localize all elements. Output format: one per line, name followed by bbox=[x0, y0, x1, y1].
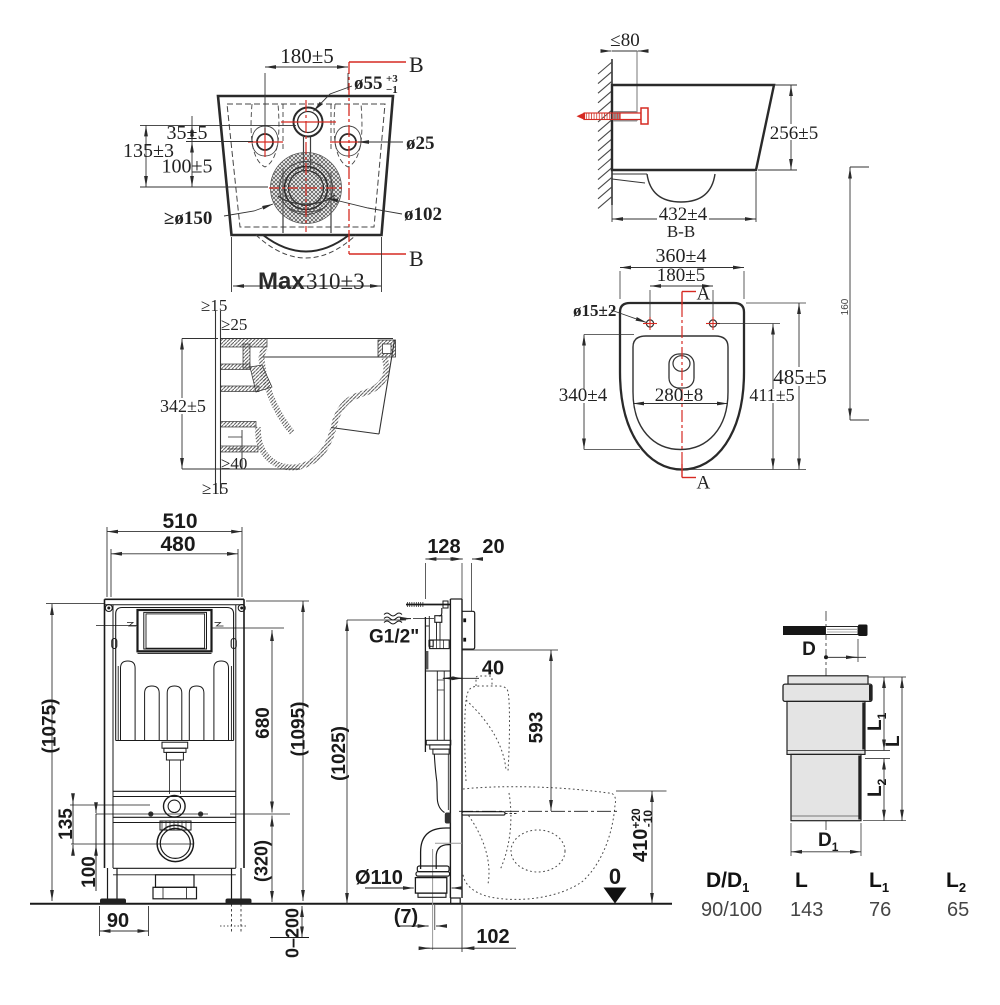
svg-text:≤80: ≤80 bbox=[610, 30, 639, 51]
svg-text:100: 100 bbox=[79, 856, 100, 888]
svg-text:≥25: ≥25 bbox=[221, 315, 247, 334]
svg-text:B: B bbox=[409, 52, 424, 77]
svg-text:256±5: 256±5 bbox=[770, 123, 818, 144]
svg-text:B: B bbox=[409, 246, 424, 271]
svg-text:102: 102 bbox=[476, 926, 509, 948]
svg-text:≥ø150: ≥ø150 bbox=[164, 208, 212, 229]
svg-text:(320): (320) bbox=[252, 840, 272, 882]
svg-text:ø102: ø102 bbox=[404, 204, 442, 225]
svg-text:ø15±2: ø15±2 bbox=[573, 301, 616, 320]
svg-text:180±5: 180±5 bbox=[280, 44, 334, 68]
svg-text:280±8: 280±8 bbox=[655, 385, 703, 406]
svg-text:ø55: ø55 bbox=[354, 73, 383, 94]
svg-text:510: 510 bbox=[162, 510, 197, 533]
svg-text:(1095): (1095) bbox=[289, 702, 310, 757]
svg-text:310±3: 310±3 bbox=[306, 269, 365, 294]
svg-text:≥40: ≥40 bbox=[221, 454, 247, 473]
svg-text:Ø110: Ø110 bbox=[355, 867, 403, 889]
svg-text:128: 128 bbox=[427, 536, 460, 558]
svg-text:A: A bbox=[697, 473, 711, 494]
svg-text:G1/2": G1/2" bbox=[369, 627, 419, 648]
svg-text:342±5: 342±5 bbox=[160, 396, 206, 416]
svg-text:143: 143 bbox=[790, 899, 823, 921]
svg-text:340±4: 340±4 bbox=[559, 385, 608, 406]
svg-text:B-B: B-B bbox=[667, 222, 695, 241]
svg-text:≥15: ≥15 bbox=[202, 479, 228, 498]
svg-text:411±5: 411±5 bbox=[749, 385, 794, 405]
svg-text:360±4: 360±4 bbox=[656, 245, 707, 267]
svg-text:65: 65 bbox=[947, 899, 969, 921]
svg-text:160: 160 bbox=[840, 298, 851, 315]
svg-text:40: 40 bbox=[482, 658, 504, 680]
svg-text:76: 76 bbox=[869, 899, 891, 921]
svg-text:≥15: ≥15 bbox=[201, 296, 227, 315]
svg-text:A: A bbox=[697, 284, 711, 305]
svg-text:35±5: 35±5 bbox=[167, 122, 208, 144]
svg-text:(7): (7) bbox=[394, 906, 418, 928]
svg-text:0: 0 bbox=[609, 864, 621, 889]
svg-text:90: 90 bbox=[107, 910, 129, 932]
svg-text:(1075): (1075) bbox=[40, 699, 61, 754]
svg-text:L: L bbox=[883, 735, 904, 747]
svg-text:410+20-10: 410+20-10 bbox=[629, 808, 655, 862]
svg-text:−1: −1 bbox=[386, 84, 398, 96]
svg-text:20: 20 bbox=[482, 536, 504, 558]
svg-text:135: 135 bbox=[56, 808, 77, 840]
svg-text:0–200: 0–200 bbox=[283, 908, 303, 958]
svg-text:L: L bbox=[795, 869, 808, 892]
svg-text:680: 680 bbox=[253, 707, 274, 739]
svg-text:90/100: 90/100 bbox=[701, 899, 762, 921]
svg-text:100±5: 100±5 bbox=[162, 156, 213, 178]
svg-text:593: 593 bbox=[527, 712, 548, 744]
svg-text:Max: Max bbox=[258, 268, 305, 295]
svg-text:ø25: ø25 bbox=[406, 133, 435, 154]
svg-text:D: D bbox=[802, 639, 816, 660]
svg-text:480: 480 bbox=[160, 533, 195, 556]
svg-text:(1025): (1025) bbox=[329, 726, 350, 781]
